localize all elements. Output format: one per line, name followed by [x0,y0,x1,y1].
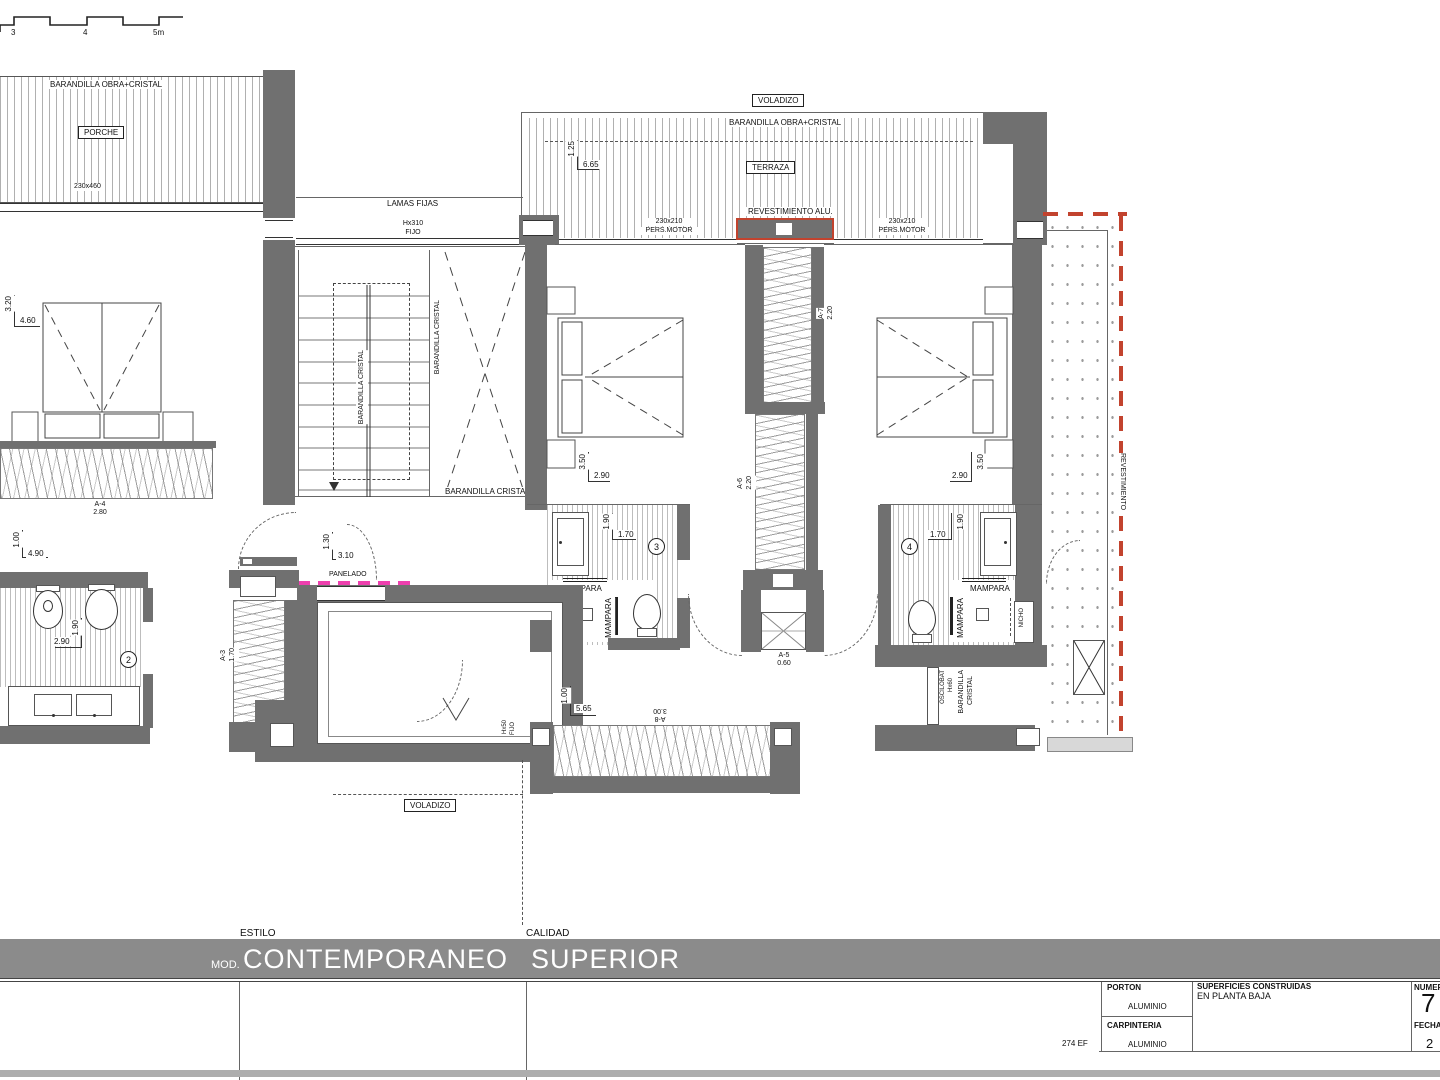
elevator-sw-notch [270,723,294,747]
porch-size-label: 230x460 [72,183,103,191]
window-a6 [755,414,805,570]
bed3-door-arc [688,594,742,656]
lamas-height-label: Hx310 [396,220,430,228]
terraza-name-box: TERRAZA [746,161,795,174]
bath3-faucet-icon [559,541,562,544]
numero-value: 7 [1421,988,1435,1019]
w8-east-notch [774,728,792,746]
ne-window-opening [1017,221,1043,239]
hall-fijo-h: Hx50 [502,720,509,734]
bath3-mampara-screen [563,578,607,582]
lamas-fijo-label: FIJO [396,229,430,237]
a6-size: 2.20 [744,476,756,490]
ref-value: 274 EF [1062,1039,1088,1048]
east-revestimiento-label: REVESTIMIENTO [1116,453,1128,510]
titleblock-vline-2 [526,982,527,1080]
bath4-nicho-label: NICHO [1019,608,1026,627]
hall-niche [240,576,276,597]
bath4-shower-dash [1010,598,1011,636]
bath3-toilet-icon [633,594,661,630]
table-vline-2 [1192,982,1193,1052]
east-oscilobat-window [927,667,939,725]
voladizo-dashed-v [522,760,523,925]
bath4-faucet-icon [1004,541,1007,544]
wall-bath3-south [608,638,680,650]
east-terrace-border-v [1107,230,1108,735]
wall-a5-east [806,590,824,652]
wall-porch-column [263,70,295,218]
wall-elevator-west [297,585,317,762]
wall-bath2-south [0,726,150,744]
terraza-left-window [523,220,553,236]
wall-west-spine [263,240,295,505]
wall-bath2-east-1 [143,588,153,622]
bath2-number-badge: 2 [120,651,137,668]
bath4-glass [950,597,953,635]
stairs-rail-c: BARANDILLA CRISTAL [443,487,532,496]
bed4-top-line [824,244,1014,245]
wall-w8-north [530,620,552,652]
bath4-number-badge: 4 [901,538,918,555]
bath4-toilet-base [912,634,932,643]
mod-label: MOD. [211,959,240,971]
wall-a7-a6 [745,402,825,414]
terraza-rail-label: BARANDILLA OBRA+CRISTAL [727,118,843,127]
lamas-window-band [296,238,523,245]
bed4-icon [875,282,1015,474]
pers-left-type: PERS.MOTOR [640,227,698,235]
a5-code: A-5 [766,652,802,660]
bed3-icon [545,282,690,474]
calidad-label: CALIDAD [526,928,569,940]
voladizo-bottom-box: VOLADIZO [404,799,456,812]
terraza-dim-h: 6.65 [581,160,601,169]
pers-right-size: 230x210 [878,218,926,226]
porch-rail-label: BARANDILLA OBRA+CRISTAL [48,80,164,89]
porch-window-opening [265,220,293,238]
east-terrace-border-h [1047,230,1107,231]
bed4-door-arc [824,594,878,656]
bed4-dim-v: 3.50 [974,454,987,470]
hall-dim-h: 3.10 [336,551,356,560]
lamas-line [296,197,523,198]
terraza-dim-v: 1.25 [565,141,578,157]
void-x-icon [443,250,527,497]
bath3-mampara-v: MAMPARA [602,598,615,638]
bath2-sink-1 [34,694,72,716]
bath2-toilet-icon [85,589,118,630]
scale-label-5m: 5m [153,28,164,37]
bed1-dim-v: 3.20 [2,296,15,312]
terrace-tub-x-icon [1073,640,1105,695]
terraza-dashed-line [545,141,973,142]
calidad-value: SUPERIOR [531,944,680,975]
estilo-label: ESTILO [240,928,276,940]
hall-door-handle [243,559,252,564]
wall-bed3-west [525,245,547,510]
bath2-vanity [8,686,140,726]
bed1-win-size: 2.80 [82,509,118,517]
bath3-dim-h: 1.70 [616,530,636,539]
bath4-dim-v: 1.90 [954,514,967,530]
w8-dim-v: 1.00 [558,688,571,704]
red-dashed-top [1043,212,1127,216]
revestimiento-alu-label: REVESTIMIENTO ALU. [746,207,835,216]
w8-code: A-8 [655,715,666,722]
bath3-glass [615,597,618,635]
hall-fijo-type: FIJO [510,722,517,735]
a7-size: 2.20 [825,306,837,320]
scale-label-4: 4 [83,28,87,37]
wall-w8-sill [553,777,770,793]
bath4-mampara-v: MAMPARA [954,598,967,638]
estilo-value: CONTEMPORANEO [243,944,508,975]
bath2-faucet-1-icon [52,714,55,717]
wall-bath2-east-2 [143,674,153,728]
bath2-top-dim-h: 4.90 [26,549,46,558]
hall-v-mark-icon [441,696,471,722]
window-a5-x-icon [761,612,806,650]
bed3-dim-h: 2.90 [592,471,612,480]
wall-a6-east [806,414,818,572]
bath4-mampara-screen [962,578,1006,582]
superficies-label: SUPERFICIES CONSTRUIDAS [1197,982,1311,991]
window-a8 [553,725,771,777]
porton-label: PORTON [1107,983,1141,992]
w8-dim-h: 5.65 [574,704,594,713]
wall-bath2-north [0,572,148,588]
porch-name-box: PORCHE [78,126,124,139]
se-notch [1016,728,1040,746]
stairs-top-line [295,246,527,247]
superficies-value: EN PLANTA BAJA [1197,991,1271,1001]
titleblock-vline-1 [239,982,240,1080]
wall-bath4-south [875,645,1047,667]
bath2-dim-v: 1.90 [69,620,82,636]
a6-south-notch [773,574,793,587]
stairs-arrow-icon [329,482,339,491]
revestimiento-notch [776,223,792,235]
wall-se-corner [875,725,1035,751]
porch-sill [0,203,295,212]
bath3-toilet-base [637,628,657,637]
stairs-rail-a: BARANDILLA CRISTAL [356,350,368,424]
porton-value: ALUMINIO [1128,1002,1167,1011]
table-hline-1 [1101,1016,1193,1017]
pers-right-type: PERS.MOTOR [873,227,931,235]
stairs-dashed-outline [333,283,410,480]
panelado-label: PANELADO [327,571,369,579]
wall-a7-west [745,245,763,403]
bed1-dim-h: 4.60 [18,316,38,325]
bath4-dim-h: 1.70 [928,530,948,539]
bottom-strip [0,1070,1440,1077]
bed3-dim-v: 3.50 [576,454,589,470]
bath2-dim-h: 2.90 [52,637,72,646]
bed1-win-code: A-4 [82,501,118,509]
elevator-door-opening [313,586,385,601]
wall-bath4-west [878,505,891,645]
a5-size: 0.60 [766,660,802,668]
bath2-sink-2 [76,694,112,716]
bath4-mampara-h: MAMPARA [968,584,1012,593]
east-oscilobat-type: OSCILOBAT [940,670,947,704]
table-hline-2 [1099,1051,1440,1052]
wall-bed4-east [1012,245,1042,645]
floor-plan-canvas: 3 4 5m BARANDILLA OBRA+CRISTAL PORCHE 23… [0,0,1440,1080]
wall-a5-west [741,590,761,652]
wall-bed1-window-head [0,441,216,448]
terrace-slab [1047,737,1133,752]
fecha-value: 2 [1426,1036,1433,1051]
w8-size: 3.00 [653,707,667,714]
table-vline-3 [1411,982,1412,1052]
a3-size: 1.70 [227,648,239,662]
bath2-top-dim-v: 1.00 [10,532,23,548]
bed4-dim-h: 2.90 [950,471,970,480]
bath3-dim-v: 1.90 [600,514,613,530]
scale-label-3: 3 [11,28,15,37]
east-rail-1: BARANDILLA [958,670,966,714]
w8-code-size: A-8 3.00 [640,706,680,722]
carpinteria-label: CARPINTERIA [1107,1021,1162,1030]
bath4-drain-icon [976,608,989,621]
hall-dim-v: 1.30 [320,534,333,550]
pers-left-size: 230x210 [645,218,693,226]
wall-terraza-ne-1 [983,112,1047,144]
window-a7 [763,247,812,403]
east-oscilobat-h: Hx60 [948,678,955,692]
wall-a7-east [812,247,824,403]
bed1-window-a4 [0,448,213,499]
bath3-number-badge: 3 [648,538,665,555]
east-rail-2: CRISTAL [967,676,975,705]
voladizo-dashed-h [333,794,523,795]
lamas-label: LAMAS FIJAS [385,199,440,208]
w8-west-notch [532,728,550,746]
bed3-top-line [555,244,745,245]
fecha-label: FECHA [1414,1021,1440,1030]
bath2-faucet-2-icon [93,714,96,717]
porch-deck-hatch [0,76,263,203]
carpinteria-value: ALUMINIO [1128,1040,1167,1049]
table-vline-1 [1101,982,1102,1052]
voladizo-top-box: VOLADIZO [752,94,804,107]
wall-bath3-east-1 [677,505,690,560]
bath4-toilet-icon [908,600,936,636]
bath2-bidet-bowl [43,600,53,612]
